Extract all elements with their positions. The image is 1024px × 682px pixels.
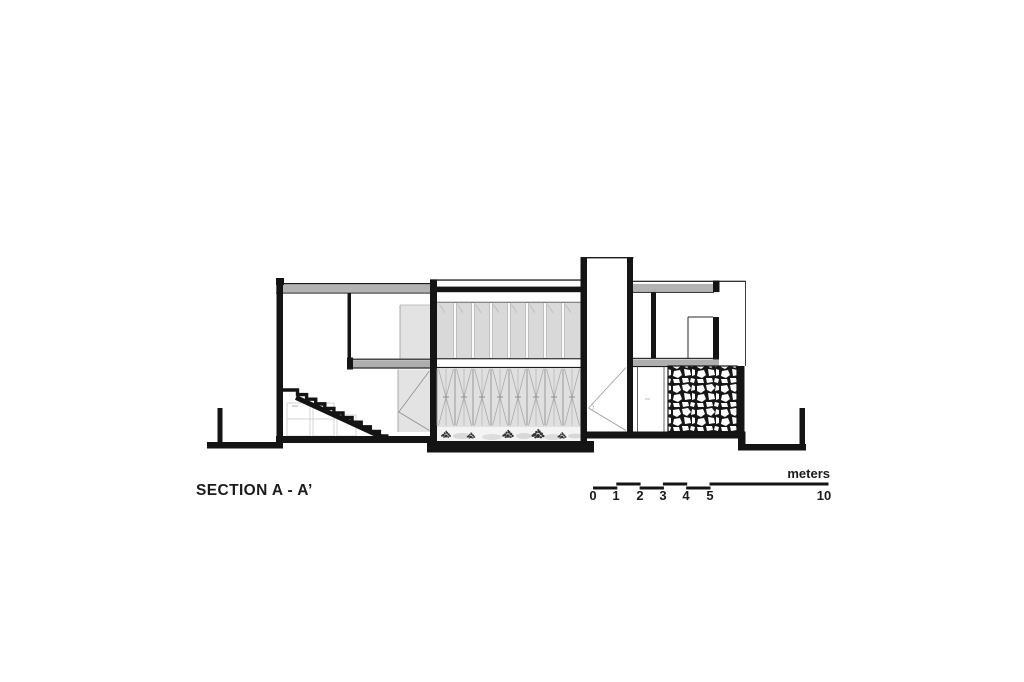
tower-roof-line [581,257,634,258]
scale-tick-3: 3 [659,488,666,503]
left-exterior-wall [277,280,284,445]
staircase [283,390,389,439]
planting-strip [437,427,591,441]
scale-tick-2: 2 [636,488,643,503]
tower-right-wall [627,258,633,434]
right-ground [738,408,806,451]
tower-left-wall [581,258,588,445]
stone-wall [668,366,745,438]
central-left-wall [430,279,437,445]
right-ground-line [738,444,806,451]
left-ground-line [207,408,283,449]
upper-interior-wall [348,293,352,359]
upper-back-wall-elevation [400,305,434,359]
right-fence-post [800,408,806,445]
right-ground-floor-slab [587,432,739,439]
scale-tick-4: 4 [682,488,689,503]
scale-tick-5: 5 [706,488,713,503]
ground-door-elevation-left [398,370,430,433]
left-roof-slab [276,278,437,294]
upper-window-opening [688,317,719,367]
right-roof-slab [633,281,746,367]
central-roof-parapet [430,279,581,302]
left-floor-slab [347,358,437,370]
section-drawing [0,0,1024,682]
scale-tick-0: 0 [589,488,596,503]
section-title: SECTION A - A’ [196,482,313,500]
scale-tick-1: 1 [612,488,619,503]
central-block [427,279,594,452]
left-wing [276,278,437,445]
ground-glass-door-right [638,367,665,432]
courtyard-floor-slab [427,441,594,453]
scale-unit-label: meters [787,466,830,481]
tower [581,257,634,445]
central-floor-slab-lines [437,358,581,368]
left-ground-floor-slab [276,436,430,443]
sheet: SECTION A - A’ meters 0 1 2 3 4 5 10 [0,0,1024,682]
scale-tick-10: 10 [817,488,831,503]
left-fence-post [218,408,223,444]
right-upper-interior-wall [651,293,656,359]
